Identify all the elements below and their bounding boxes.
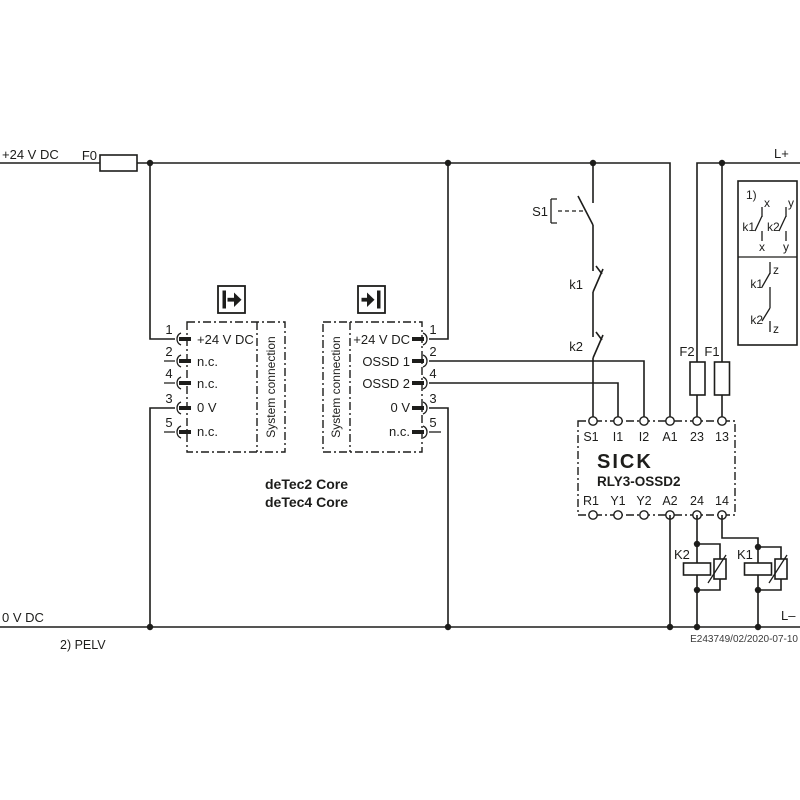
terminal-s1: S1	[583, 430, 598, 444]
relay-model: RLY3-OSSD2	[597, 474, 681, 489]
label-k1-contact: k1	[569, 277, 583, 292]
k2-contact-symbol	[593, 332, 603, 358]
receiver-pins: 1 2 4 3 5 +24 V DC OSSD 1 OSSD 2 0 V n.c…	[353, 322, 436, 439]
device-name-detec2: deTec2 Core	[265, 476, 348, 492]
k2-coil-symbol	[684, 563, 711, 575]
relay-brand: SICK	[597, 451, 653, 473]
receiver-pin-label-2: OSSD 1	[362, 354, 410, 369]
receiver-pin-label-1: +24 V DC	[353, 332, 410, 347]
device-names: deTec2 Core deTec4 Core	[265, 476, 348, 510]
terminal-r1: R1	[583, 494, 599, 508]
sender-pin-label-4: n.c.	[197, 376, 218, 391]
terminal-14: 14	[715, 494, 729, 508]
terminal-24: 24	[690, 494, 704, 508]
device-name-detec4: deTec4 Core	[265, 494, 348, 510]
sender-pin-label-3: 0 V	[197, 400, 217, 415]
terminal-a1: A1	[662, 430, 677, 444]
k1-contact-symbol	[593, 266, 603, 292]
sender-icon	[218, 286, 245, 313]
sender-device: System connection 1 2 4 3 5 +24 V DC n.c…	[165, 286, 285, 452]
receiver-system-connection: System connection	[329, 336, 343, 437]
legend-box: 1) x y k1 k2 x y z k1 k2 z	[738, 181, 797, 345]
receiver-pin-num-2: 2	[429, 344, 436, 359]
sender-pin-label-2: n.c.	[197, 354, 218, 369]
fuse-f2-symbol	[690, 362, 705, 395]
label-0vdc: 0 V DC	[2, 610, 44, 625]
s1-actuator-icon	[551, 199, 557, 223]
legend-z-bottom: z	[773, 322, 779, 336]
label-fuse-f1: F1	[704, 344, 719, 359]
bottom-rail-0v: 0 V DC L– 2) PELV E243749/02/2020-07-10	[0, 608, 800, 652]
sender-pin-num-1: 1	[165, 322, 172, 337]
label-fuse-f2: F2	[679, 344, 694, 359]
terminal-y1: Y1	[610, 494, 625, 508]
terminal-i2: I2	[639, 430, 649, 444]
receiver-device: System connection 1 2 4 3 5 +24 V DC OSS…	[323, 286, 437, 452]
receiver-icon	[358, 286, 385, 313]
legend-note: 1)	[746, 188, 757, 202]
note-pelv: 2) PELV	[60, 638, 106, 652]
label-s1: S1	[532, 204, 548, 219]
receiver-pin-label-3: 0 V	[390, 400, 410, 415]
label-24vdc-top: +24 V DC	[2, 147, 59, 162]
legend-k2-lower: k2	[750, 313, 763, 327]
terminal-23: 23	[690, 430, 704, 444]
legend-k1-upper: k1	[742, 220, 755, 234]
sender-pin-num-3: 3	[165, 391, 172, 406]
receiver-wires	[429, 163, 644, 627]
terminal-y2: Y2	[636, 494, 651, 508]
k1-coil-symbol	[745, 563, 772, 575]
terminal-13: 13	[715, 430, 729, 444]
fuse-f0-symbol	[100, 155, 137, 171]
receiver-pin-num-5: 5	[429, 415, 436, 430]
legend-y-top: y	[788, 196, 794, 210]
legend-y-bottom: y	[783, 240, 789, 254]
circuit-diagram: +24 V DC F0 L+ F2 F1 S1 k1	[0, 0, 800, 800]
sender-pin-label-1: +24 V DC	[197, 332, 254, 347]
terminal-a2: A2	[662, 494, 677, 508]
sender-pins: 1 2 4 3 5 +24 V DC n.c. n.c. 0 V n.c.	[165, 322, 253, 439]
label-l-minus: L–	[781, 608, 796, 623]
sender-pin-num-4: 4	[165, 366, 172, 381]
fuse-f1-symbol	[715, 362, 730, 395]
label-k2-contact: k2	[569, 339, 583, 354]
k2-varistor-symbol	[714, 559, 726, 579]
label-fuse-f0: F0	[82, 148, 97, 163]
receiver-pin-num-3: 3	[429, 391, 436, 406]
terminal-i1: I1	[613, 430, 623, 444]
sender-system-connection: System connection	[264, 336, 278, 437]
legend-k2-upper: k2	[767, 220, 780, 234]
label-l-plus: L+	[774, 146, 789, 161]
sender-pin-label-5: n.c.	[197, 424, 218, 439]
receiver-pin-num-4: 4	[429, 366, 436, 381]
safety-relay: S1 I1 I2 A1 23 13 SICK RLY3-OSSD2 R1 Y1 …	[578, 417, 735, 519]
sender-pin-num-2: 2	[165, 344, 172, 359]
k1-varistor-symbol	[775, 559, 787, 579]
doc-number: E243749/02/2020-07-10	[690, 634, 798, 645]
legend-x-top: x	[764, 196, 770, 210]
label-contactor-k1: K1	[737, 547, 753, 562]
output-contactors: K2 K1	[670, 515, 787, 627]
sender-pin-num-5: 5	[165, 415, 172, 430]
receiver-pin-label-5: n.c.	[389, 424, 410, 439]
wiring-diagram-page: +24 V DC F0 L+ F2 F1 S1 k1	[0, 0, 800, 800]
legend-k1-lower: k1	[750, 277, 763, 291]
label-contactor-k2: K2	[674, 547, 690, 562]
receiver-pin-num-1: 1	[429, 322, 436, 337]
receiver-pin-label-4: OSSD 2	[362, 376, 410, 391]
legend-z-top: z	[773, 263, 779, 277]
legend-x-bottom: x	[759, 240, 765, 254]
